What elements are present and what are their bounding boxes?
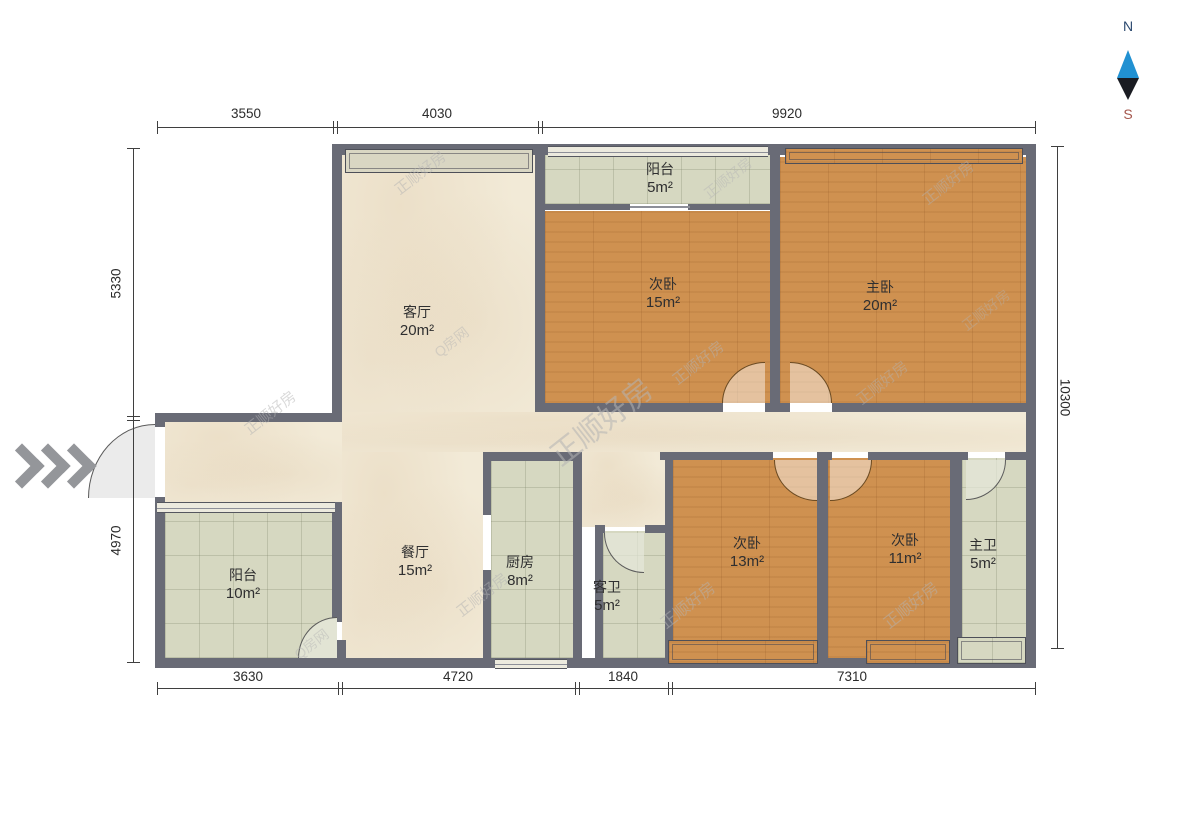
kitchen-window (495, 659, 567, 669)
master-bath-window (957, 637, 1026, 664)
balcony5-slider-line (630, 206, 690, 208)
room-label-kitchen: 厨房8m² (490, 553, 550, 591)
wall-corridor-bottom-a (660, 452, 773, 460)
dim-tick (575, 682, 576, 695)
dim-label-top-9920: 9920 (747, 106, 827, 121)
master-bedroom-bay-window (785, 148, 1023, 164)
balcony-top-window (548, 146, 768, 157)
dim-label-left-5330: 5330 (109, 254, 124, 314)
wall-bedrooms-bottom-c (832, 403, 1036, 412)
balcony-bottom-window (157, 502, 335, 513)
dim-tick (668, 682, 669, 695)
floor-hallway (342, 412, 1028, 452)
dim-label-bottom-1840: 1840 (583, 669, 663, 684)
floor-bath-corridor (582, 452, 667, 527)
wall-living-left (332, 144, 342, 422)
dim-label-top-4030: 4030 (397, 106, 477, 121)
dim-tick (157, 121, 158, 134)
compass-north-label: N (1108, 18, 1148, 34)
compass-needle-south-icon (1117, 78, 1139, 100)
room-label-master-bedroom: 主卧20m² (850, 278, 910, 316)
wall-bedroom15-left (535, 144, 545, 412)
bedroom13-bay-window (668, 640, 818, 664)
floor-entry-hall (165, 422, 342, 502)
dim-tick (1035, 121, 1036, 134)
dim-tick (333, 121, 334, 134)
dim-tick (1035, 682, 1036, 695)
room-label-dining-room: 餐厅15m² (385, 543, 445, 581)
room-label-balcony-top: 阳台5m² (630, 160, 690, 198)
room-label-bedroom-13: 次卧13m² (717, 534, 777, 572)
floor-plan-canvas: 阳台5m² 次卧15m² 主卧20m² 客厅20m² 餐厅15m² 厨房8m² … (0, 0, 1199, 813)
room-label-living-room: 客厅20m² (387, 303, 447, 341)
wall-bedroom13-11-divider (817, 452, 828, 668)
compass: N S (1108, 18, 1148, 128)
wall-bedrooms-bottom-b (765, 403, 790, 412)
wall-guestbath-top-a (595, 525, 605, 533)
dim-label-right-10300: 10300 (1058, 368, 1073, 428)
compass-needle-north-icon (1117, 50, 1139, 78)
wall-balcony5-divider-a (545, 204, 630, 210)
wall-kitchen-top (483, 452, 582, 461)
living-room-bay-window (345, 149, 533, 173)
room-label-bedroom-11: 次卧11m² (875, 531, 935, 569)
wall-corridor-bottom-c (868, 452, 968, 460)
dim-tick (1051, 146, 1064, 147)
dim-tick (127, 148, 140, 149)
wall-entry-top (155, 413, 340, 422)
wall-left-lower (155, 497, 165, 668)
wall-kitchen-left-upper (483, 452, 491, 515)
dim-tick (127, 662, 140, 663)
wall-bedroom13-left (665, 452, 673, 668)
dim-label-bottom-4720: 4720 (418, 669, 498, 684)
room-label-bedroom-15: 次卧15m² (633, 275, 693, 313)
wall-bedrooms-bottom-a (535, 403, 723, 412)
wall-balcony5-divider-b (688, 204, 770, 210)
dim-line-bottom (157, 688, 1035, 689)
wall-bedrooms-divider-top (770, 144, 780, 412)
dim-label-left-4970: 4970 (109, 511, 124, 571)
wall-corridor-bottom-b (817, 452, 832, 460)
dim-tick (127, 416, 140, 417)
dim-line-top (157, 127, 1035, 128)
wall-corridor-bottom-d (1005, 452, 1036, 460)
wall-kitchen-right (573, 452, 582, 668)
wall-guestbath-top-b (645, 525, 667, 533)
floor-living-room (342, 155, 535, 412)
compass-south-label: S (1108, 106, 1148, 122)
bedroom11-bay-window (866, 640, 950, 664)
room-label-guest-bath: 客卫5m² (577, 578, 637, 616)
room-label-balcony-bottom: 阳台10m² (213, 566, 273, 604)
entrance-door-arc (88, 424, 155, 498)
dim-label-bottom-3630: 3630 (208, 669, 288, 684)
dim-label-top-3550: 3550 (206, 106, 286, 121)
dim-tick (1051, 648, 1064, 649)
dim-tick (538, 121, 539, 134)
dim-tick (338, 682, 339, 695)
wall-balcony10-right (332, 502, 342, 622)
dim-label-bottom-7310: 7310 (812, 669, 892, 684)
dim-tick (157, 682, 158, 695)
room-label-master-bath: 主卫5m² (953, 536, 1013, 574)
dim-line-left (133, 148, 134, 662)
